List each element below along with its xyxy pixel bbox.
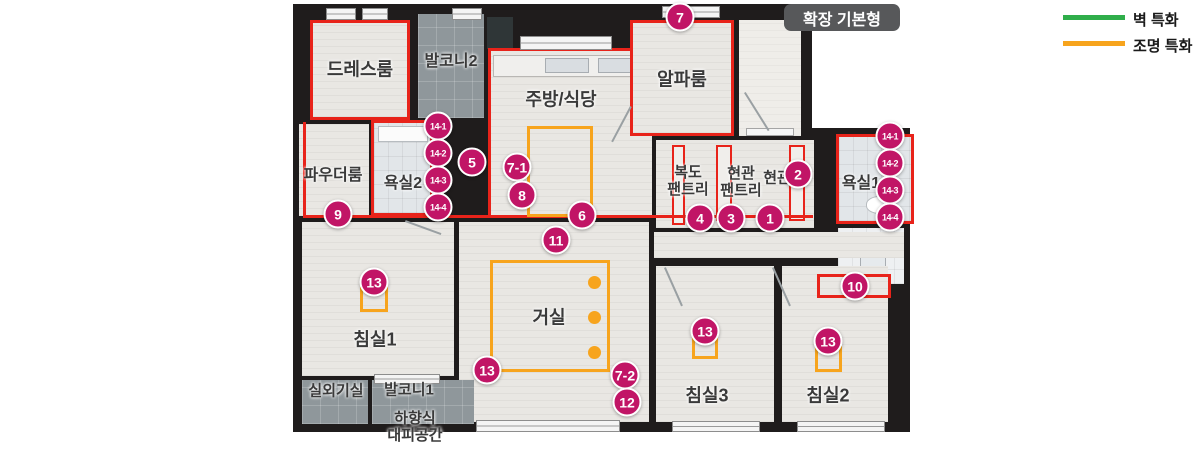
bath2-tub: [378, 126, 428, 142]
marker-badge-7[interactable]: 7: [666, 3, 695, 32]
label-evacuation-space: 하향식 대피공간: [387, 410, 442, 445]
label-corridor-pantry: 복도 팬트리: [667, 164, 708, 199]
lighting-dot-2: [588, 311, 601, 324]
legend-wall-swatch: [1063, 15, 1125, 20]
window-bed2: [797, 421, 885, 432]
label-powder: 파우더룸: [304, 167, 363, 185]
marker-badge-14-1[interactable]: 14-1: [876, 122, 905, 151]
marker-badge-14-1[interactable]: 14-1: [424, 112, 453, 141]
label-bed3: 침실3: [685, 386, 728, 407]
marker-badge-7-1[interactable]: 7-1: [503, 153, 532, 182]
label-dressroom: 드레스룸: [327, 60, 393, 81]
marker-badge-14-4[interactable]: 14-4: [424, 193, 453, 222]
marker-badge-13[interactable]: 13: [360, 268, 389, 297]
window-dressroom-1: [326, 8, 356, 20]
marker-badge-5[interactable]: 5: [458, 148, 487, 177]
window-dressroom-2: [362, 8, 388, 20]
window-bed3: [672, 421, 760, 432]
label-bath1: 욕실1: [842, 175, 880, 193]
marker-badge-9[interactable]: 9: [324, 200, 353, 229]
marker-badge-13[interactable]: 13: [473, 356, 502, 385]
marker-badge-6[interactable]: 6: [568, 201, 597, 230]
legend-light-swatch: [1063, 41, 1125, 46]
marker-badge-13[interactable]: 13: [691, 317, 720, 346]
plan-type-badge: 확장 기본형: [784, 4, 900, 31]
kitchen-sink: [545, 58, 589, 73]
label-kitchen: 주방/식당: [525, 90, 596, 111]
marker-badge-10[interactable]: 10: [841, 272, 870, 301]
label-outdoor-unit: 실외기실: [308, 382, 363, 399]
label-bed2: 침실2: [806, 386, 849, 407]
entry-vestibule: [739, 20, 801, 136]
legend-light-label: 조명 특화: [1133, 35, 1192, 56]
label-balcony1: 발코니1: [384, 381, 434, 398]
marker-badge-1[interactable]: 1: [756, 204, 785, 233]
hall-area: [654, 232, 904, 258]
marker-badge-14-3[interactable]: 14-3: [424, 166, 453, 195]
legend-wall-label: 벽 특화: [1133, 9, 1179, 30]
label-bed1: 침실1: [353, 330, 396, 351]
label-balcony2: 발코니2: [424, 53, 477, 71]
marker-badge-2[interactable]: 2: [784, 160, 813, 189]
entry-door-sill: [746, 128, 794, 136]
marker-badge-8[interactable]: 8: [508, 181, 537, 210]
window-living: [476, 420, 620, 432]
marker-badge-7-2[interactable]: 7-2: [611, 361, 640, 390]
label-living: 거실: [532, 308, 565, 329]
lighting-dot-1: [588, 276, 601, 289]
label-bath2: 욕실2: [384, 175, 422, 193]
marker-badge-14-4[interactable]: 14-4: [876, 203, 905, 232]
marker-badge-14-2[interactable]: 14-2: [424, 139, 453, 168]
marker-badge-3[interactable]: 3: [717, 204, 746, 233]
lighting-dot-3: [588, 346, 601, 359]
marker-badge-4[interactable]: 4: [686, 204, 715, 233]
floorplan-page: 드레스룸 발코니2 주방/식당 알파룸 파우더룸 욕실2 복도 팬트리 현관 팬…: [0, 0, 1200, 452]
marker-badge-11[interactable]: 11: [542, 226, 571, 255]
marker-badge-14-3[interactable]: 14-3: [876, 176, 905, 205]
window-balcony2: [452, 8, 482, 20]
label-entrance-pantry: 현관 팬트리: [720, 165, 761, 200]
window-kitchen: [520, 36, 612, 50]
marker-badge-13[interactable]: 13: [814, 327, 843, 356]
closet-box: [487, 17, 513, 49]
label-alpha: 알파룸: [657, 70, 707, 91]
marker-badge-12[interactable]: 12: [613, 388, 642, 417]
marker-badge-14-2[interactable]: 14-2: [876, 149, 905, 178]
